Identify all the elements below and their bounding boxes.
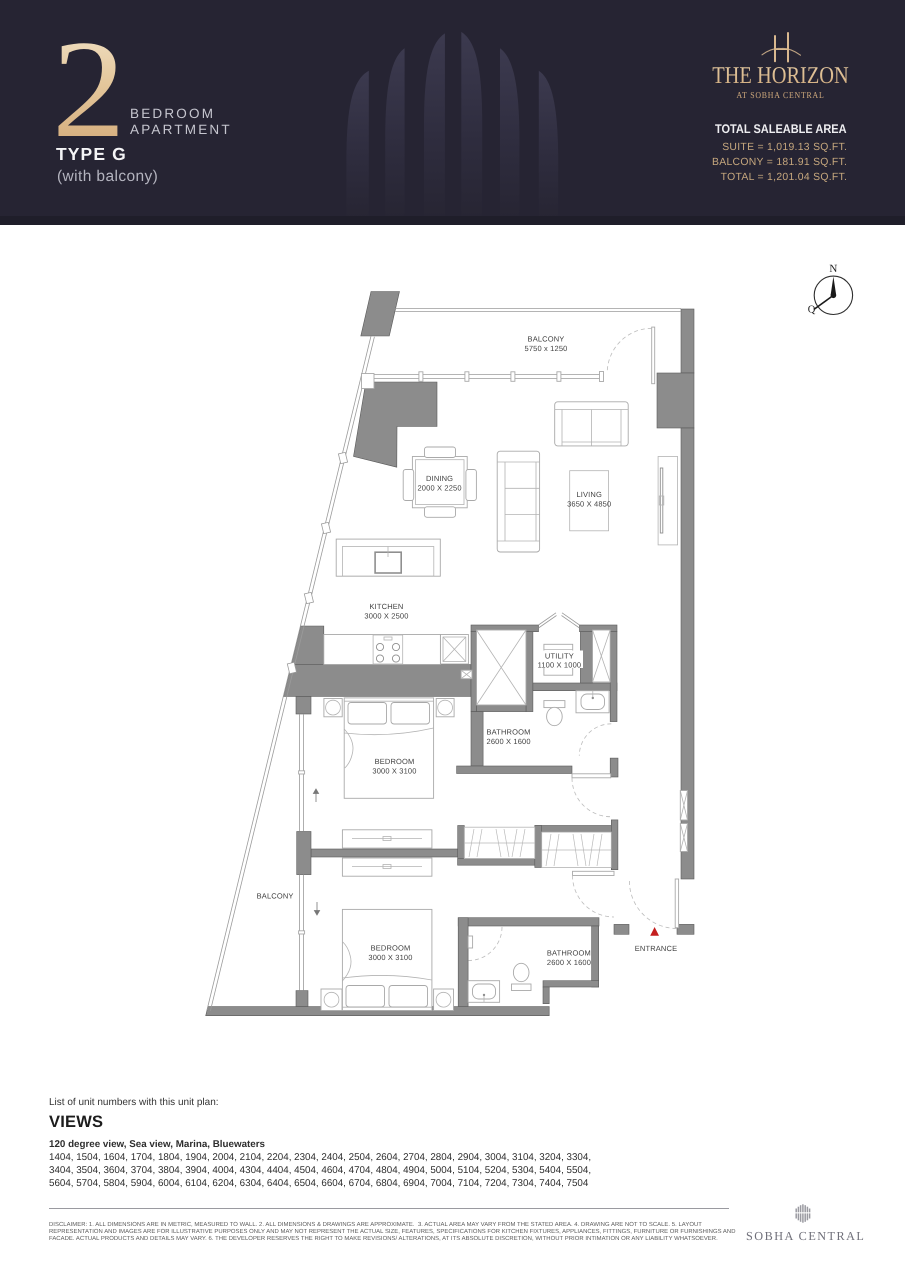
svg-text:BEDROOM: BEDROOM [375, 757, 415, 766]
svg-text:3000 X 3100: 3000 X 3100 [368, 953, 412, 962]
svg-text:2600 X 1600: 2600 X 1600 [547, 958, 591, 967]
svg-text:BATHROOM: BATHROOM [487, 728, 531, 737]
svg-text:3000 X 3100: 3000 X 3100 [372, 767, 416, 776]
svg-text:ENTRANCE: ENTRANCE [635, 944, 677, 953]
svg-text:BEDROOM: BEDROOM [371, 944, 411, 953]
svg-text:BATHROOM: BATHROOM [547, 949, 591, 958]
svg-text:2000 X 2250: 2000 X 2250 [417, 484, 461, 493]
svg-text:3650 X 4850: 3650 X 4850 [567, 500, 611, 509]
svg-text:Q: Q [808, 305, 816, 316]
svg-text:KITCHEN: KITCHEN [370, 602, 404, 611]
svg-text:UTILITY: UTILITY [545, 652, 574, 661]
svg-text:1100 X 1000: 1100 X 1000 [538, 661, 582, 670]
svg-text:BALCONY: BALCONY [257, 892, 294, 901]
svg-text:2600 X 1600: 2600 X 1600 [487, 737, 531, 746]
svg-text:BALCONY: BALCONY [528, 335, 565, 344]
svg-text:LIVING: LIVING [576, 490, 602, 499]
svg-text:3000 X 2500: 3000 X 2500 [364, 612, 408, 621]
svg-text:DINING: DINING [426, 474, 453, 483]
svg-text:5750 x 1250: 5750 x 1250 [525, 344, 568, 353]
svg-text:N: N [829, 263, 837, 275]
